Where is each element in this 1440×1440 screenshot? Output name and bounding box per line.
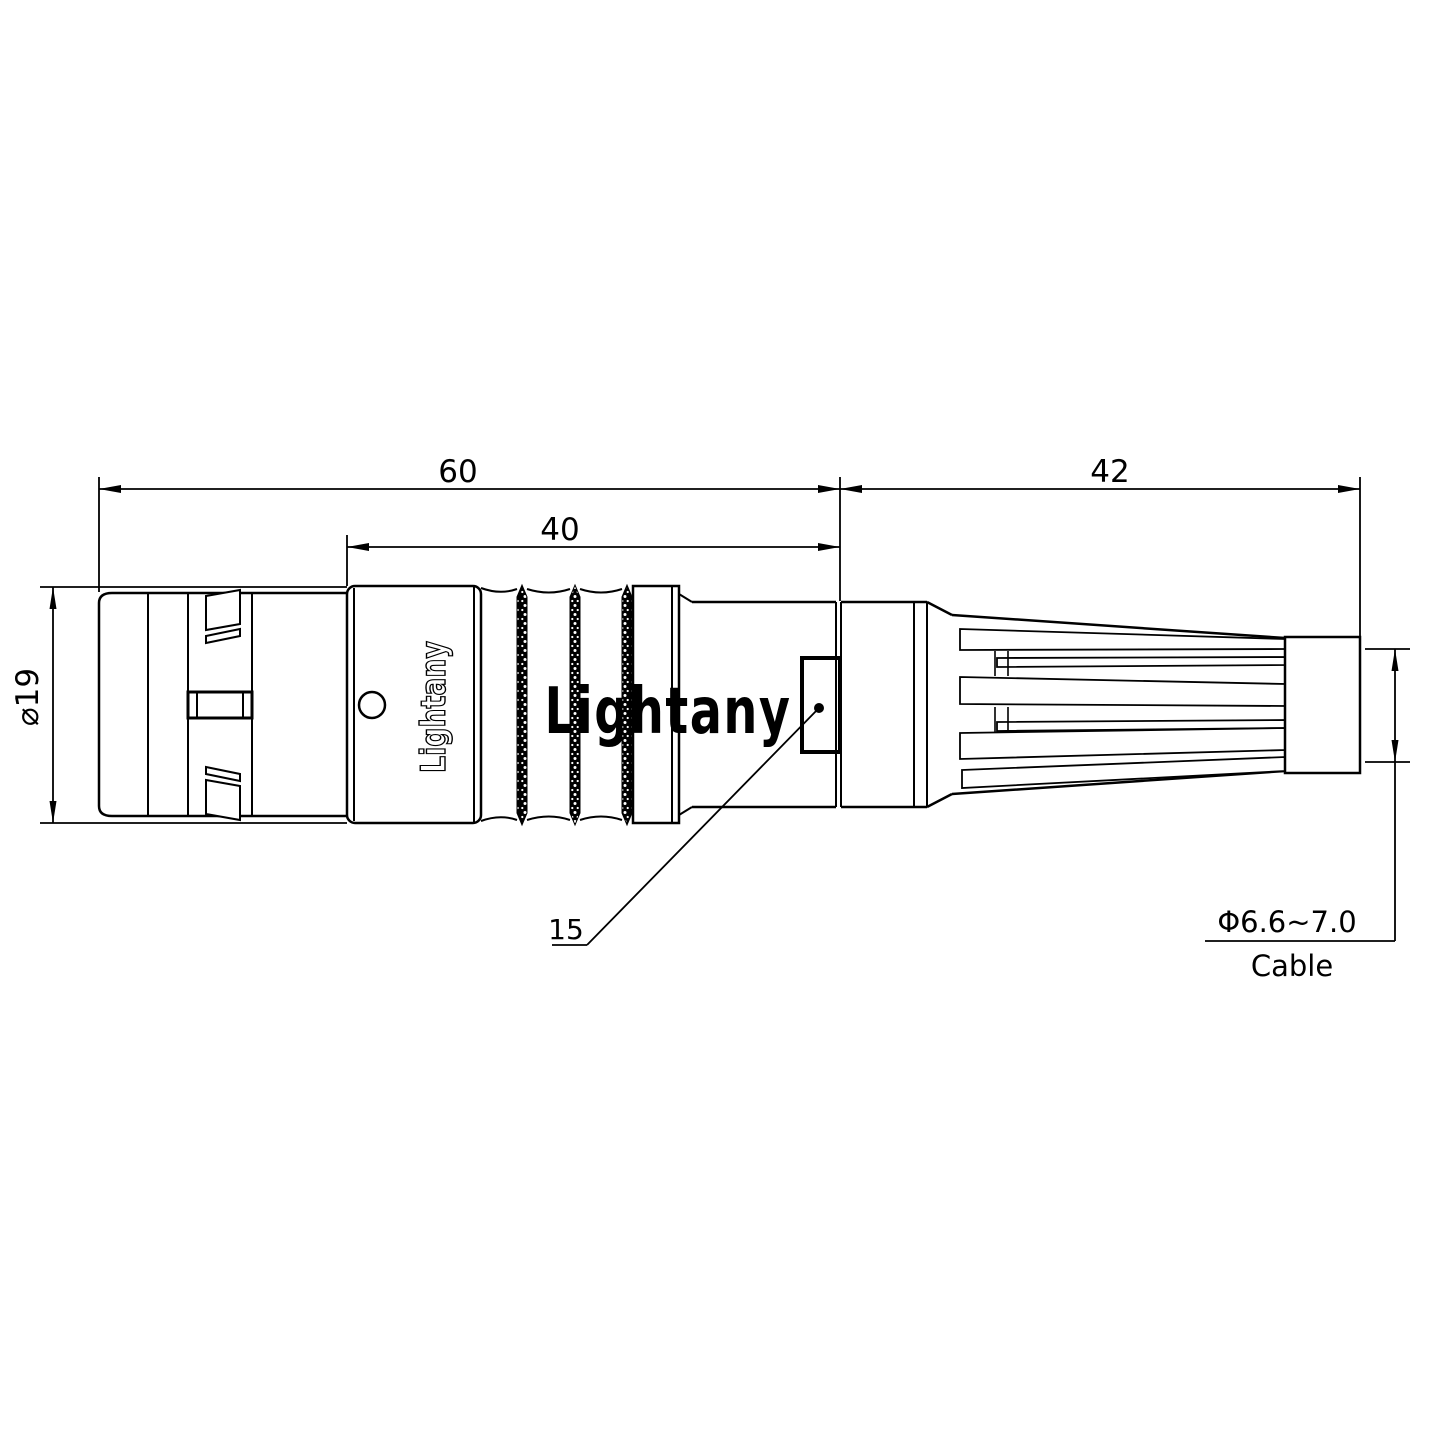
coupling-nut-section (99, 590, 347, 820)
dimension-dia19: ⌀19 (10, 587, 347, 823)
boot-rib (997, 657, 1285, 667)
dimension-dia19-label: ⌀19 (10, 668, 46, 726)
mid-ring-section: Lightany (347, 586, 481, 823)
strain-relief-boot (952, 615, 1360, 794)
connector-drawing-canvas: Lightany Lighta (0, 0, 1440, 1440)
bayonet-pin-top (206, 590, 240, 643)
knurl-band (570, 585, 580, 825)
dimension-60-label: 60 (438, 454, 477, 490)
cable-diameter-label: Φ6.6~7.0 (1217, 905, 1356, 939)
boot-rib (960, 629, 1285, 650)
technical-drawing-page: Lightany Lighta (0, 0, 1440, 1440)
knurl-band (517, 585, 527, 825)
cable-word-label: Cable (1251, 949, 1333, 983)
dimension-60: 60 (99, 454, 840, 601)
brand-watermark: Lightany (545, 675, 792, 749)
locating-hole (359, 692, 385, 718)
callout-15-label: 15 (548, 913, 584, 946)
dimension-40-label: 40 (540, 512, 579, 548)
boot-rib (960, 728, 1285, 759)
brand-text-on-body: Lightany (414, 641, 454, 773)
rear-cap-section (841, 602, 952, 807)
dimension-40: 40 (347, 512, 840, 586)
cable-collar (1285, 637, 1360, 773)
boot-rib (960, 677, 1285, 706)
dimension-42-label: 42 (1090, 454, 1129, 490)
bayonet-pin-bottom (206, 767, 240, 820)
bayonet-slot (188, 692, 252, 718)
knurl-band (622, 585, 632, 825)
dimension-42: 42 (840, 454, 1360, 636)
